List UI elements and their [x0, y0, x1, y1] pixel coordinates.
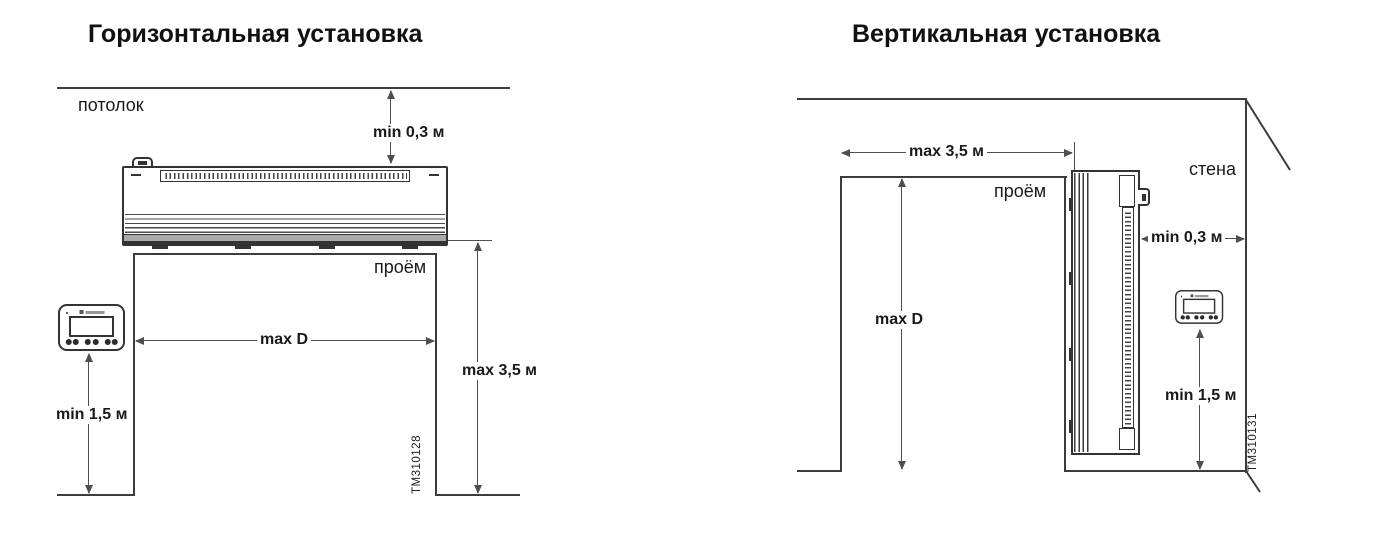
dim-label-opening-height: max 3,5 м [459, 362, 540, 380]
wall-label: стена [1189, 160, 1236, 180]
brand-logo-icon [79, 310, 104, 314]
controller-buttons [65, 339, 118, 345]
doorway-top-line [840, 176, 1067, 178]
floor-line-right [437, 494, 520, 496]
controller-buttons [1180, 315, 1218, 319]
outlet-louvers [1074, 173, 1090, 452]
opening-label: проём [374, 258, 426, 278]
floor-line-right [1065, 470, 1247, 472]
remote-controller [58, 304, 125, 351]
extension-line [1074, 142, 1075, 172]
figure-code: TM310131 [1247, 414, 1259, 472]
end-cap [1119, 428, 1135, 450]
outlet-strip [124, 234, 446, 244]
mounting-foot [1069, 198, 1073, 211]
dim-label-ceiling-gap: min 0,3 м [370, 124, 447, 142]
page-title: Горизонтальная установка [88, 20, 422, 49]
air-curtain-unit-horizontal [122, 157, 448, 246]
opening-label: проём [994, 182, 1046, 202]
ceiling-label: потолок [78, 96, 144, 116]
controller-display [69, 316, 114, 337]
led-indicator [66, 312, 68, 314]
doorway-right-jamb [435, 253, 437, 496]
intake-grille [160, 170, 410, 182]
dim-label-wall-gap: min 0,3 м [1148, 229, 1225, 247]
doorway-top-line [133, 253, 437, 255]
mounting-foot [152, 246, 168, 249]
outlet-louvers [125, 214, 445, 233]
remote-controller [1175, 290, 1223, 324]
brand-logo-icon [1190, 294, 1208, 297]
floor-line-left [57, 494, 134, 496]
mounting-foot [1069, 272, 1073, 285]
led-indicator [1181, 296, 1182, 297]
wall-top-line [797, 98, 1247, 100]
mounting-foot [402, 246, 418, 249]
doorway-left-jamb [840, 176, 842, 472]
figure-code: TM310128 [411, 434, 423, 494]
cable-gland [1138, 188, 1150, 206]
end-cap-mark [131, 174, 141, 176]
mounting-foot [319, 246, 335, 249]
floor-line-left [797, 470, 842, 472]
dim-label-controller-height: min 1,5 м [1162, 387, 1239, 405]
wall-break-marks [0, 0, 1380, 537]
air-curtain-unit-vertical [1071, 170, 1140, 455]
end-cap [1119, 175, 1135, 207]
extension-line [448, 240, 492, 241]
dim-label-opening-width: max D [257, 331, 311, 349]
ceiling-line [57, 87, 510, 89]
doorway-right-jamb [1064, 176, 1066, 472]
mounting-foot [1069, 420, 1073, 433]
dim-label-opening-width: max 3,5 м [906, 143, 987, 161]
doorway-left-jamb [133, 253, 135, 496]
intake-grille [1122, 207, 1134, 428]
installation-diagram-page: Горизонтальная установка потолок min 0,3… [0, 0, 1380, 537]
controller-display [1183, 299, 1215, 314]
dim-label-controller-height: min 1,5 м [53, 406, 130, 424]
end-cap-mark [429, 174, 439, 176]
mounting-foot [235, 246, 251, 249]
dim-label-opening-height: max D [872, 311, 926, 329]
mounting-foot [1069, 348, 1073, 361]
unit-body [122, 166, 448, 246]
page-title: Вертикальная установка [852, 20, 1160, 49]
